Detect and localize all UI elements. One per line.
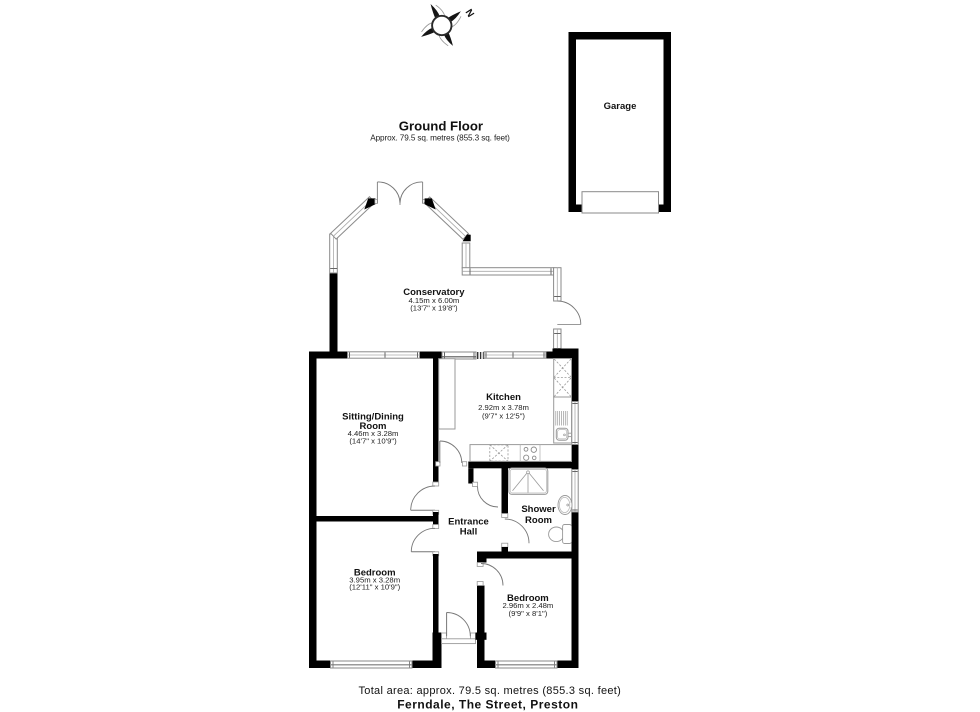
svg-text:(9'7" x 12'5"): (9'7" x 12'5") xyxy=(482,411,525,420)
svg-text:(9'9" x 8'1"): (9'9" x 8'1") xyxy=(509,609,548,618)
svg-text:Hall: Hall xyxy=(460,526,477,537)
svg-text:(13'7" x 19'8"): (13'7" x 19'8") xyxy=(410,303,458,312)
svg-text:Shower: Shower xyxy=(521,504,556,515)
svg-text:(12'11" x 10'9"): (12'11" x 10'9") xyxy=(349,583,400,592)
svg-text:Ground Floor: Ground Floor xyxy=(399,118,483,133)
svg-text:Ferndale, The Street, Preston: Ferndale, The Street, Preston xyxy=(397,698,578,712)
svg-text:Kitchen: Kitchen xyxy=(486,392,521,403)
svg-text:Garage: Garage xyxy=(604,101,637,112)
svg-text:(14'7" x 10'9"): (14'7" x 10'9") xyxy=(349,437,397,446)
svg-text:Total area: approx. 79.5 sq. m: Total area: approx. 79.5 sq. metres (855… xyxy=(358,685,621,697)
svg-text:Approx. 79.5 sq. metres (855.3: Approx. 79.5 sq. metres (855.3 sq. feet) xyxy=(370,133,510,142)
svg-text:Room: Room xyxy=(525,515,552,526)
